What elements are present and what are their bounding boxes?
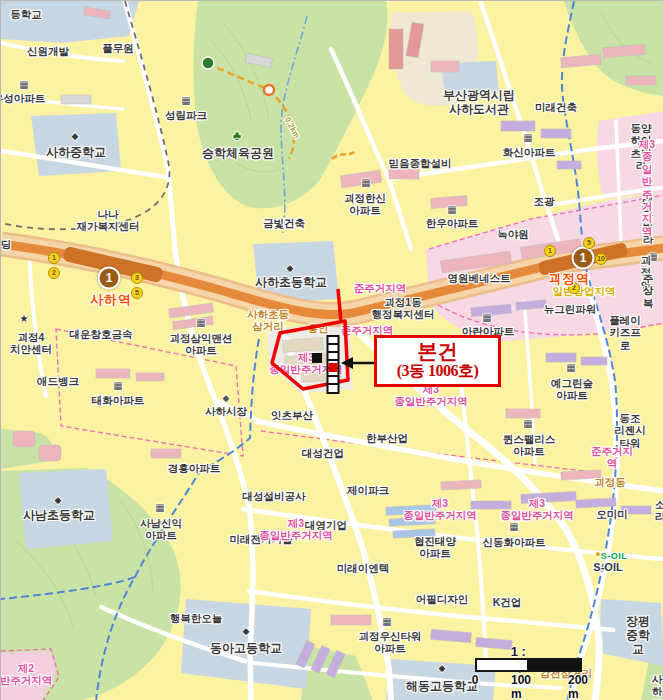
trail-waypoint bbox=[264, 85, 274, 95]
scale-bar-white bbox=[477, 660, 527, 670]
scale-tick-0: 0 bbox=[472, 673, 479, 687]
scale-bar bbox=[475, 658, 582, 672]
scale-tick-200: 200 m bbox=[568, 673, 588, 700]
scale-tick-100: 100 m bbox=[511, 673, 531, 700]
map-canvas[interactable]: ▦◆▦♣◆▦▦▦▦▦★▦◆▦◆▦▦▦◆▦●▦◆◆◆▦등학교신원개발풀무원우성아파… bbox=[0, 0, 663, 700]
callout-title: 본건 bbox=[418, 341, 458, 362]
scale-bar-black bbox=[527, 660, 580, 670]
subject-callout: 본건 (3동 1006호) bbox=[374, 335, 501, 387]
callout-unit: (3동 1006호) bbox=[397, 362, 479, 380]
trailhead-marker bbox=[202, 57, 214, 69]
basemap bbox=[1, 1, 663, 700]
